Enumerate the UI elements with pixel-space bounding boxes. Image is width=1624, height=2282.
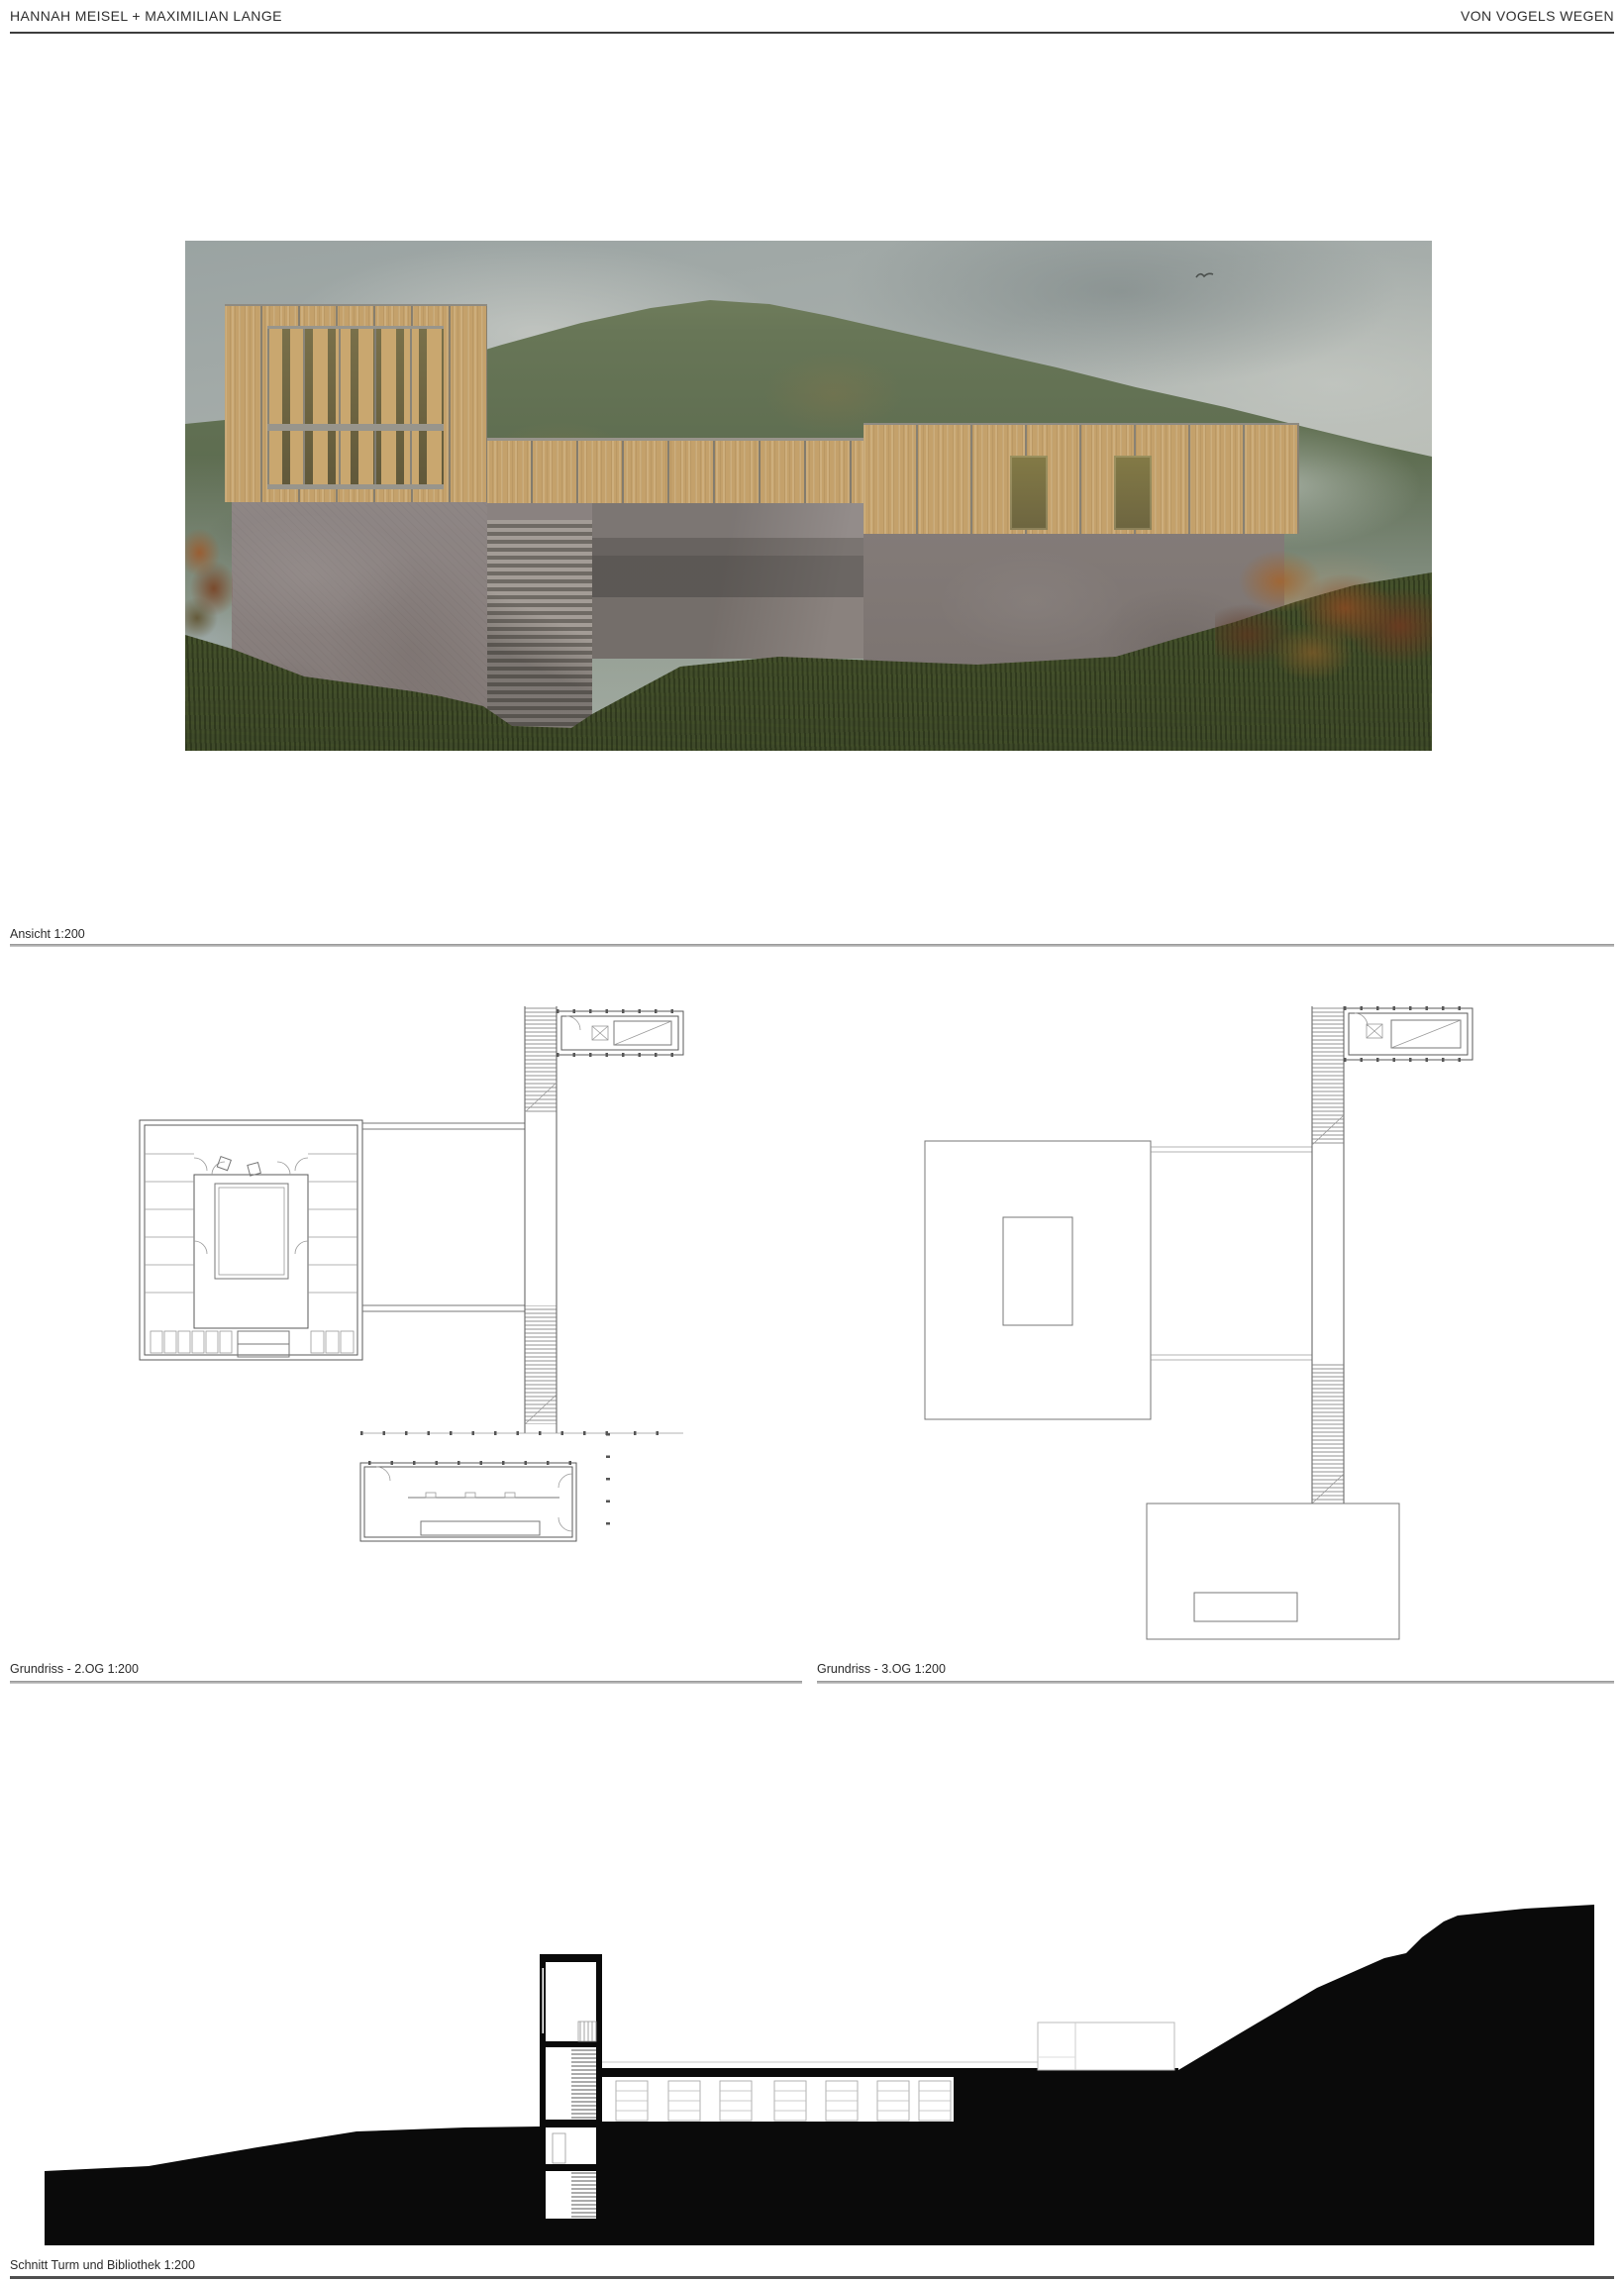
window-sill <box>267 484 444 489</box>
section-drawing <box>0 1897 1624 2282</box>
rendering-caption: Ansicht 1:200 <box>10 927 85 941</box>
autumn-shrubs <box>1215 528 1432 706</box>
project-title: VON VOGELS WEGEN <box>1461 8 1614 24</box>
exterior-stair <box>483 520 592 751</box>
plan-3og-caption-rule <box>817 1681 1614 1684</box>
window <box>1010 456 1048 530</box>
rendering-caption-rule <box>10 944 1614 947</box>
section-caption: Schnitt Turm und Bibliothek 1:200 <box>10 2258 195 2272</box>
floor-plan-3og <box>822 990 1515 1654</box>
presentation-sheet: HANNAH MEISEL + MAXIMILIAN LANGE VON VOG… <box>0 0 1624 2282</box>
plan-2og-caption-rule <box>10 1681 802 1684</box>
bird-icon <box>1195 270 1215 280</box>
plan-3og-caption: Grundriss - 3.OG 1:200 <box>817 1662 946 1676</box>
plan-2og-caption: Grundriss - 2.OG 1:200 <box>10 1662 139 1676</box>
autumn-bush <box>185 523 233 642</box>
section-caption-rule <box>10 2276 1614 2279</box>
header-rule <box>10 32 1614 34</box>
right-wood-volume <box>863 423 1299 534</box>
window <box>1114 456 1152 530</box>
window-separator <box>267 424 444 431</box>
tower-slatted-window <box>267 326 444 489</box>
tower-wood-volume <box>225 304 487 502</box>
floor-plan-2og <box>0 990 812 1654</box>
connecting-wood-band <box>487 438 863 503</box>
elevation-rendering <box>185 241 1432 751</box>
author-names: HANNAH MEISEL + MAXIMILIAN LANGE <box>10 8 282 24</box>
